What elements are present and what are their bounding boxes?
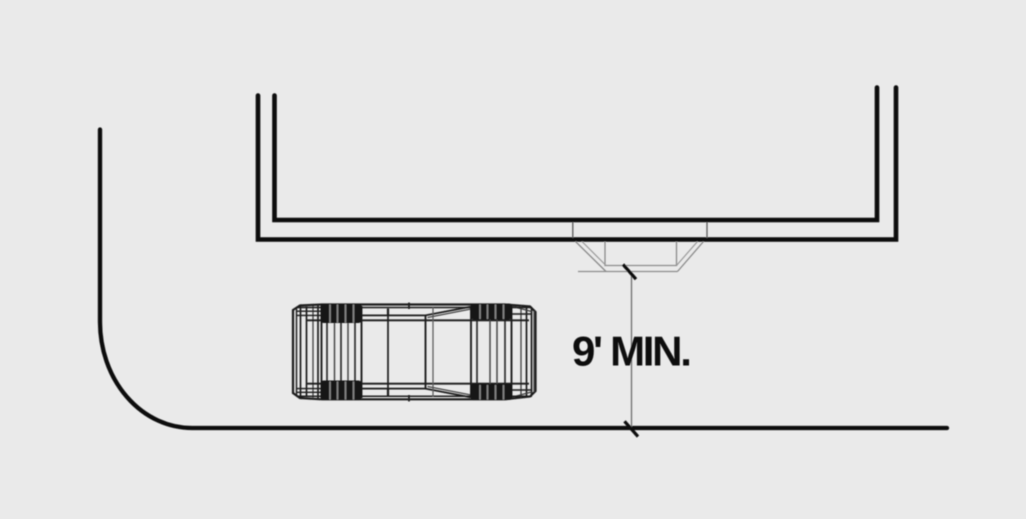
svg-text:9' MIN.: 9' MIN. — [572, 328, 690, 375]
